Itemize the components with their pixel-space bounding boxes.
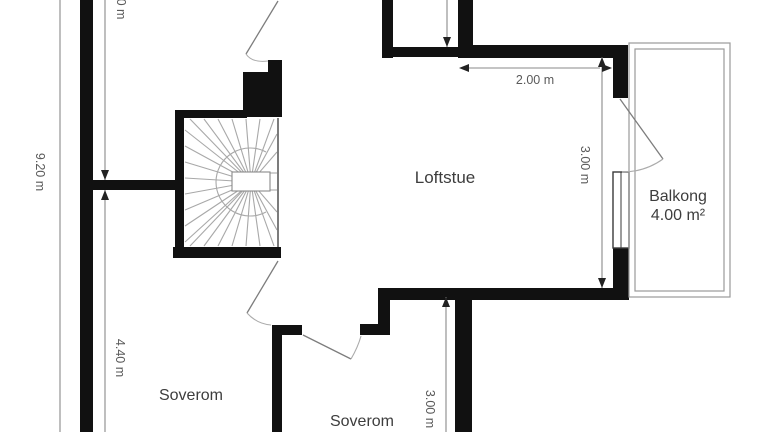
walls	[80, 0, 629, 432]
wall-right-upper	[613, 45, 628, 98]
wall-left-outer	[80, 0, 93, 432]
wall-stairs-top	[175, 110, 247, 118]
arrow-down-top-center	[443, 37, 451, 47]
wall-soverom2-stub-right	[360, 324, 390, 335]
door-soverom2-leaf	[303, 335, 351, 359]
dim-text-upper-left-partial: 0 m	[114, 0, 128, 19]
dim-text-920: 9.20 m	[33, 153, 47, 191]
door-swing-arcs	[246, 54, 663, 359]
room-label-soverom-1: Soverom	[159, 387, 223, 405]
stairs	[185, 118, 278, 247]
balcony-inner-edge	[635, 49, 724, 291]
wall-hall-block-step	[268, 60, 282, 74]
wall-bottom-right	[455, 297, 472, 432]
dim-text-200: 2.00 m	[516, 73, 554, 87]
wall-loftstue-bottom	[383, 288, 629, 300]
room-label-soverom-2: Soverom	[330, 413, 394, 431]
arrow-down-upper-left	[101, 170, 109, 180]
arrow-up-300-right	[598, 57, 606, 67]
room-area-balkong: 4.00 m²	[651, 206, 705, 226]
arrow-up-440	[101, 190, 109, 200]
wall-soverom2-left	[272, 325, 282, 432]
dimension-lines	[60, 0, 602, 432]
door-soverom1-arc	[247, 313, 271, 325]
wall-mid-left	[88, 180, 175, 190]
room-label-balkong: Balkong	[649, 187, 707, 207]
wall-soverom2-stub-left	[280, 325, 302, 335]
balcony-outer-edge	[629, 43, 730, 297]
door-hall-top-leaf	[246, 1, 278, 54]
door-soverom2-arc	[351, 336, 361, 359]
arrow-left-200	[459, 64, 469, 72]
dim-text-440: 4.40 m	[113, 339, 127, 377]
wall-top-stub-right	[458, 0, 473, 58]
wall-loftstue-top	[473, 45, 628, 58]
arrow-down-300-right	[598, 278, 606, 288]
dim-text-300-bottom: 3.00 m	[423, 390, 437, 428]
room-label-loftstue: Loftstue	[415, 168, 476, 188]
wall-hall-block	[243, 72, 282, 117]
balcony-outline	[629, 43, 730, 297]
dim-text-300-right: 3.00 m	[578, 146, 592, 184]
stair-landing	[232, 172, 270, 191]
wall-stairs-bottom	[173, 247, 281, 258]
wall-stairs-left	[175, 110, 184, 257]
door-balcony-arc	[622, 159, 663, 172]
floor-plan: Loftstue Balkong 4.00 m² Soverom Soverom…	[0, 0, 768, 432]
door-balcony-leaf	[620, 99, 663, 159]
windows	[613, 172, 629, 248]
door-hall-top-arc	[246, 54, 268, 61]
door-soverom1-leaf	[247, 261, 278, 313]
